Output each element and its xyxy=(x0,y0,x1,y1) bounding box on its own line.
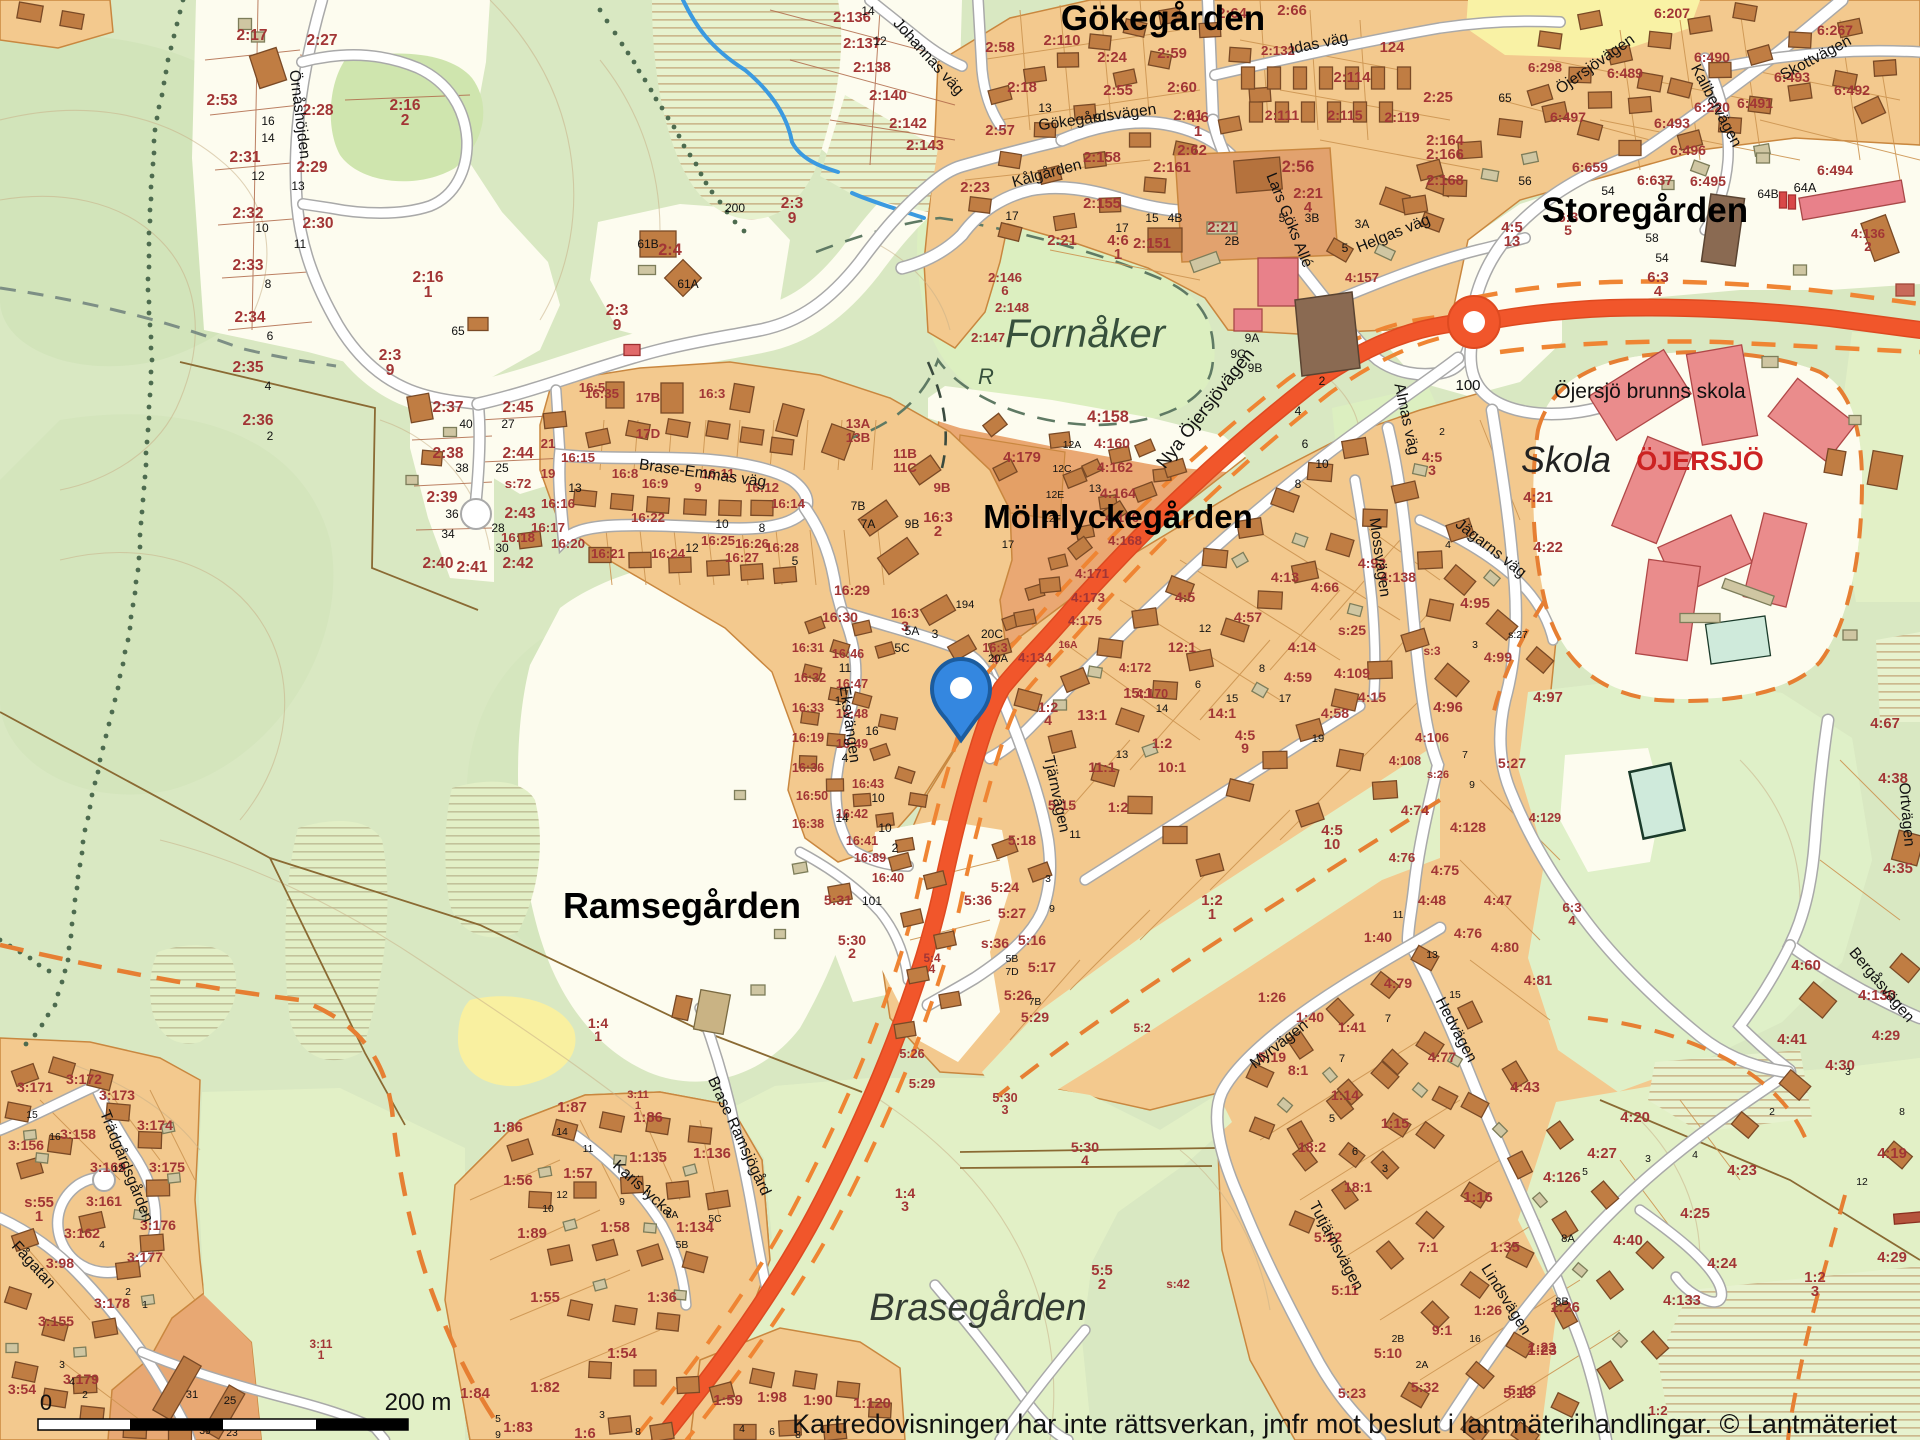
svg-text:5:27: 5:27 xyxy=(1498,755,1526,771)
svg-text:16:46: 16:46 xyxy=(832,647,864,661)
svg-text:15: 15 xyxy=(1226,693,1238,705)
svg-text:14:1: 14:1 xyxy=(1208,705,1236,721)
svg-text:2:4: 2:4 xyxy=(658,241,682,259)
svg-text:4: 4 xyxy=(1295,404,1302,418)
svg-text:10: 10 xyxy=(871,791,885,805)
svg-text:5:2: 5:2 xyxy=(1133,1021,1150,1035)
svg-text:4: 4 xyxy=(1654,284,1663,300)
svg-text:Öjersjö brunns skola: Öjersjö brunns skola xyxy=(1554,380,1746,403)
svg-text:2:140: 2:140 xyxy=(869,88,907,104)
svg-text:5:29: 5:29 xyxy=(1021,1009,1049,1025)
svg-text:194: 194 xyxy=(956,599,975,611)
svg-text:5: 5 xyxy=(495,1414,501,1425)
svg-text:4:134: 4:134 xyxy=(1018,650,1053,665)
svg-text:2:25: 2:25 xyxy=(1423,90,1453,106)
svg-text:2:29: 2:29 xyxy=(296,159,327,176)
svg-text:s:42: s:42 xyxy=(1166,1277,1190,1291)
svg-text:Gökegården: Gökegården xyxy=(1061,0,1265,38)
svg-text:20C: 20C xyxy=(981,627,1003,641)
svg-text:11C: 11C xyxy=(893,460,917,475)
svg-text:s:36: s:36 xyxy=(981,935,1009,951)
svg-text:2:56: 2:56 xyxy=(1282,158,1315,176)
svg-text:8B: 8B xyxy=(1555,1296,1569,1308)
svg-text:2:53: 2:53 xyxy=(206,92,237,109)
svg-text:4:168: 4:168 xyxy=(1108,533,1142,548)
svg-text:5:24: 5:24 xyxy=(991,879,1019,895)
svg-text:4:76: 4:76 xyxy=(1389,850,1416,865)
svg-text:s:72: s:72 xyxy=(505,476,532,491)
svg-text:2:17: 2:17 xyxy=(236,27,267,44)
svg-text:12C: 12C xyxy=(1052,464,1072,475)
svg-text:8A: 8A xyxy=(1561,1233,1575,1245)
svg-text:2:57: 2:57 xyxy=(985,123,1015,139)
svg-text:6:207: 6:207 xyxy=(1654,5,1690,21)
svg-text:3: 3 xyxy=(932,627,939,641)
svg-text:15: 15 xyxy=(1145,211,1159,225)
svg-text:7B: 7B xyxy=(1029,997,1042,1008)
svg-text:10: 10 xyxy=(1315,457,1329,471)
svg-text:7:1: 7:1 xyxy=(1418,1239,1439,1255)
svg-text:1:55: 1:55 xyxy=(530,1290,560,1306)
svg-text:4: 4 xyxy=(1568,913,1576,928)
svg-text:5C: 5C xyxy=(708,1214,722,1225)
svg-text:17: 17 xyxy=(1279,693,1291,705)
svg-text:6:298: 6:298 xyxy=(1528,60,1562,75)
svg-text:5: 5 xyxy=(792,554,799,568)
svg-text:2:37: 2:37 xyxy=(432,399,463,416)
svg-text:5:31: 5:31 xyxy=(824,892,852,908)
svg-text:3:155: 3:155 xyxy=(38,1313,74,1329)
svg-text:38: 38 xyxy=(455,461,469,475)
svg-text:3:172: 3:172 xyxy=(66,1071,102,1087)
svg-text:2: 2 xyxy=(1319,374,1326,388)
svg-text:5: 5 xyxy=(1329,1113,1335,1125)
svg-text:5:10: 5:10 xyxy=(1374,1345,1402,1361)
svg-text:4:58: 4:58 xyxy=(1321,705,1349,721)
svg-text:s:26: s:26 xyxy=(1427,769,1449,781)
svg-text:2: 2 xyxy=(401,112,410,129)
svg-text:64A: 64A xyxy=(1794,180,1817,195)
svg-text:6:491: 6:491 xyxy=(1737,95,1773,111)
svg-text:1:6: 1:6 xyxy=(574,1426,595,1440)
svg-text:2: 2 xyxy=(848,945,856,961)
svg-text:4:126: 4:126 xyxy=(1543,1170,1581,1186)
svg-text:2:40: 2:40 xyxy=(422,555,453,572)
svg-text:4: 4 xyxy=(99,1240,105,1251)
svg-text:2:23: 2:23 xyxy=(960,180,990,196)
svg-text:2:147: 2:147 xyxy=(971,330,1005,345)
svg-text:4:15: 4:15 xyxy=(1358,689,1386,705)
svg-text:4:19: 4:19 xyxy=(1877,1146,1907,1162)
svg-text:4:157: 4:157 xyxy=(1345,270,1379,285)
svg-text:25: 25 xyxy=(495,461,509,475)
svg-text:16:50: 16:50 xyxy=(796,789,828,803)
svg-text:16:40: 16:40 xyxy=(872,871,904,885)
svg-text:11B: 11B xyxy=(893,446,917,461)
svg-text:4:21: 4:21 xyxy=(1523,490,1553,506)
svg-text:16:89: 16:89 xyxy=(854,851,886,865)
svg-text:9B: 9B xyxy=(934,480,951,495)
svg-text:10: 10 xyxy=(878,821,892,835)
svg-text:4:40: 4:40 xyxy=(1613,1233,1643,1249)
svg-text:11: 11 xyxy=(839,661,852,675)
svg-text:5:27: 5:27 xyxy=(998,905,1026,921)
svg-text:2: 2 xyxy=(125,1287,131,1298)
svg-text:12A: 12A xyxy=(1063,440,1082,451)
svg-text:16:3: 16:3 xyxy=(699,386,726,401)
svg-text:1:58: 1:58 xyxy=(600,1220,630,1236)
svg-text:6:494: 6:494 xyxy=(1817,162,1853,178)
svg-text:9: 9 xyxy=(1469,780,1475,791)
svg-text:16:21: 16:21 xyxy=(591,546,626,561)
svg-text:6:496: 6:496 xyxy=(1670,142,1706,158)
svg-text:5:23: 5:23 xyxy=(1338,1385,1366,1401)
svg-text:2:161: 2:161 xyxy=(1153,160,1191,176)
svg-text:16:25: 16:25 xyxy=(701,533,736,548)
svg-text:9: 9 xyxy=(1049,904,1055,915)
svg-text:7: 7 xyxy=(1339,1053,1345,1065)
svg-text:2:33: 2:33 xyxy=(232,257,263,274)
svg-text:3: 3 xyxy=(1845,1067,1851,1078)
svg-text:4:172: 4:172 xyxy=(1119,661,1151,675)
svg-text:4:158: 4:158 xyxy=(1087,408,1129,426)
svg-text:3: 3 xyxy=(901,1198,909,1214)
svg-text:36: 36 xyxy=(445,507,459,521)
svg-text:2A: 2A xyxy=(1416,1360,1429,1371)
svg-text:3: 3 xyxy=(1001,1103,1008,1117)
svg-text:1:84: 1:84 xyxy=(460,1386,490,1402)
svg-text:3: 3 xyxy=(1428,462,1436,478)
svg-text:1:2: 1:2 xyxy=(1108,799,1129,815)
svg-text:19: 19 xyxy=(1312,733,1324,745)
svg-text:9B: 9B xyxy=(905,517,920,531)
svg-text:5:13: 5:13 xyxy=(1503,1386,1533,1402)
svg-text:4:97: 4:97 xyxy=(1533,690,1563,706)
svg-text:40: 40 xyxy=(459,417,473,431)
svg-text:31: 31 xyxy=(186,1389,198,1401)
svg-text:12: 12 xyxy=(556,1190,568,1201)
svg-text:s:25: s:25 xyxy=(1338,622,1366,638)
svg-text:2:31: 2:31 xyxy=(229,149,260,166)
svg-text:4: 4 xyxy=(1044,712,1052,728)
svg-text:2:45: 2:45 xyxy=(502,399,533,416)
svg-text:61A: 61A xyxy=(677,277,698,291)
svg-text:61B: 61B xyxy=(637,237,658,251)
svg-text:9: 9 xyxy=(788,210,797,227)
svg-text:2:41: 2:41 xyxy=(456,559,487,576)
svg-text:1:15: 1:15 xyxy=(1381,1115,1409,1131)
svg-text:2:155: 2:155 xyxy=(1083,196,1121,212)
svg-text:16:22: 16:22 xyxy=(631,510,665,525)
svg-text:65: 65 xyxy=(1498,91,1512,105)
svg-text:7D: 7D xyxy=(1005,967,1018,978)
svg-text:2:27: 2:27 xyxy=(306,32,337,49)
svg-text:5:16: 5:16 xyxy=(1018,932,1046,948)
svg-text:15: 15 xyxy=(26,1110,38,1121)
svg-text:2:24: 2:24 xyxy=(1097,50,1127,66)
svg-text:1:40: 1:40 xyxy=(1364,929,1392,945)
svg-text:2:115: 2:115 xyxy=(1327,107,1362,123)
svg-text:Storegården: Storegården xyxy=(1542,191,1748,230)
svg-text:14: 14 xyxy=(556,1127,568,1138)
svg-text:7B: 7B xyxy=(851,499,866,513)
svg-text:16:15: 16:15 xyxy=(561,450,596,465)
svg-text:16: 16 xyxy=(49,1132,61,1143)
svg-text:16:24: 16:24 xyxy=(651,546,686,561)
svg-text:4:81: 4:81 xyxy=(1524,972,1552,988)
svg-text:4:173: 4:173 xyxy=(1071,590,1105,605)
svg-text:16A: 16A xyxy=(1058,640,1078,651)
svg-text:1:56: 1:56 xyxy=(503,1173,533,1189)
svg-text:4:95: 4:95 xyxy=(1460,596,1490,612)
svg-text:5:26: 5:26 xyxy=(899,1047,924,1061)
svg-text:2:168: 2:168 xyxy=(1426,173,1464,189)
svg-text:13:1: 13:1 xyxy=(1077,708,1107,724)
svg-text:17: 17 xyxy=(1005,209,1019,223)
svg-text:1:135: 1:135 xyxy=(629,1150,667,1166)
svg-text:4:67: 4:67 xyxy=(1870,716,1900,732)
svg-text:16:35: 16:35 xyxy=(585,386,620,401)
svg-text:16:31: 16:31 xyxy=(792,641,824,655)
svg-text:5:36: 5:36 xyxy=(964,892,992,908)
svg-text:3:171: 3:171 xyxy=(17,1079,53,1095)
svg-text:4:22: 4:22 xyxy=(1533,540,1563,556)
svg-text:5C: 5C xyxy=(894,641,910,655)
svg-text:4: 4 xyxy=(1445,540,1451,551)
svg-text:10: 10 xyxy=(1324,837,1340,853)
svg-text:6: 6 xyxy=(1001,283,1008,298)
svg-text:9: 9 xyxy=(619,1197,625,1208)
svg-text:1:90: 1:90 xyxy=(803,1393,833,1409)
svg-text:16:41: 16:41 xyxy=(846,834,878,848)
svg-text:16:27: 16:27 xyxy=(725,550,759,565)
svg-text:4:133: 4:133 xyxy=(1663,1293,1701,1309)
svg-text:16:43: 16:43 xyxy=(852,777,884,791)
svg-text:12: 12 xyxy=(873,34,887,48)
svg-text:4: 4 xyxy=(69,1377,75,1388)
svg-text:2:62: 2:62 xyxy=(1177,143,1207,159)
svg-text:2: 2 xyxy=(1098,1277,1106,1293)
svg-text:16:9: 16:9 xyxy=(642,476,669,491)
svg-text:6: 6 xyxy=(1352,1146,1358,1158)
svg-text:8: 8 xyxy=(635,1427,641,1438)
svg-text:4:24: 4:24 xyxy=(1707,1256,1737,1272)
svg-text:2:39: 2:39 xyxy=(426,489,457,506)
svg-text:3: 3 xyxy=(599,1410,605,1421)
svg-text:1:136: 1:136 xyxy=(693,1146,731,1162)
svg-text:2:151: 2:151 xyxy=(1133,236,1171,252)
svg-text:2:111: 2:111 xyxy=(1265,107,1300,123)
svg-text:4:41: 4:41 xyxy=(1777,1032,1807,1048)
svg-text:16:33: 16:33 xyxy=(792,701,824,715)
svg-text:13B: 13B xyxy=(846,430,870,445)
svg-text:1:98: 1:98 xyxy=(757,1390,787,1406)
svg-text:9: 9 xyxy=(613,317,622,334)
svg-text:4:29: 4:29 xyxy=(1877,1250,1907,1266)
svg-text:1: 1 xyxy=(35,1209,43,1225)
svg-text:1: 1 xyxy=(594,1028,602,1044)
svg-text:4:162: 4:162 xyxy=(1097,459,1133,475)
svg-text:Ramsegården: Ramsegården xyxy=(563,885,801,926)
svg-text:2:119: 2:119 xyxy=(1384,109,1419,125)
svg-text:3A: 3A xyxy=(1355,217,1370,231)
svg-text:13: 13 xyxy=(1038,101,1052,115)
svg-text:2:21: 2:21 xyxy=(1047,233,1077,249)
svg-text:1:57: 1:57 xyxy=(563,1166,593,1182)
svg-text:200 m: 200 m xyxy=(385,1389,452,1416)
svg-text:2: 2 xyxy=(934,524,942,540)
svg-text:16: 16 xyxy=(1469,1334,1481,1345)
svg-text:16:14: 16:14 xyxy=(771,496,806,511)
svg-text:1:82: 1:82 xyxy=(530,1380,560,1396)
svg-text:5:29: 5:29 xyxy=(909,1076,936,1091)
svg-text:13A: 13A xyxy=(846,416,871,431)
svg-text:10:1: 10:1 xyxy=(1158,759,1186,775)
svg-text:1:26: 1:26 xyxy=(1258,989,1286,1005)
svg-text:27: 27 xyxy=(501,417,515,431)
svg-text:Mölnlyckegården: Mölnlyckegården xyxy=(983,498,1253,535)
svg-text:3:174: 3:174 xyxy=(137,1117,173,1133)
svg-text:16:28: 16:28 xyxy=(765,540,799,555)
svg-text:s:27: s:27 xyxy=(1508,630,1528,641)
svg-text:13: 13 xyxy=(1426,950,1438,961)
svg-text:4:48: 4:48 xyxy=(1418,892,1446,908)
svg-text:17: 17 xyxy=(1002,539,1014,551)
svg-text:16:38: 16:38 xyxy=(792,817,824,831)
svg-text:18:1: 18:1 xyxy=(1344,1179,1372,1195)
svg-text:100: 100 xyxy=(1455,377,1480,394)
svg-text:124: 124 xyxy=(1380,40,1405,56)
svg-text:2:42: 2:42 xyxy=(502,555,533,572)
svg-text:2:158: 2:158 xyxy=(1083,150,1121,166)
svg-text:4: 4 xyxy=(265,379,272,393)
svg-text:2: 2 xyxy=(892,841,899,855)
svg-text:1: 1 xyxy=(1194,124,1202,140)
svg-text:58: 58 xyxy=(1645,231,1659,245)
svg-text:4:60: 4:60 xyxy=(1791,958,1821,974)
svg-text:2:114: 2:114 xyxy=(1333,70,1371,86)
svg-text:2: 2 xyxy=(1439,427,1445,438)
svg-text:4:74: 4:74 xyxy=(1401,802,1429,818)
svg-text:4:75: 4:75 xyxy=(1431,862,1459,878)
svg-text:9A: 9A xyxy=(1245,331,1260,345)
svg-text:4:25: 4:25 xyxy=(1680,1206,1710,1222)
svg-text:5: 5 xyxy=(1582,1167,1588,1178)
svg-text:2:55: 2:55 xyxy=(1103,83,1133,99)
svg-text:2:18: 2:18 xyxy=(1007,80,1037,96)
svg-text:4:128: 4:128 xyxy=(1450,819,1486,835)
svg-text:5B: 5B xyxy=(1006,954,1019,965)
svg-text:16:20: 16:20 xyxy=(551,536,585,551)
svg-text:56: 56 xyxy=(1518,174,1532,188)
svg-text:9: 9 xyxy=(386,362,395,379)
svg-text:1:23: 1:23 xyxy=(1527,1343,1557,1359)
svg-text:4:35: 4:35 xyxy=(1883,861,1913,877)
svg-text:10: 10 xyxy=(255,221,269,235)
svg-text:9:1: 9:1 xyxy=(1432,1322,1453,1338)
svg-text:6: 6 xyxy=(1302,437,1309,451)
svg-text:4:96: 4:96 xyxy=(1433,700,1463,716)
svg-text:6:489: 6:489 xyxy=(1607,65,1643,81)
svg-text:4:77: 4:77 xyxy=(1428,1049,1456,1065)
svg-text:3:54: 3:54 xyxy=(8,1381,36,1397)
svg-text:16:19: 16:19 xyxy=(792,731,824,745)
svg-text:0: 0 xyxy=(40,1390,52,1415)
svg-text:4:20: 4:20 xyxy=(1620,1110,1650,1126)
svg-text:1:16: 1:16 xyxy=(1463,1190,1493,1206)
svg-text:14: 14 xyxy=(1156,703,1168,715)
svg-text:2:66: 2:66 xyxy=(1277,3,1307,19)
svg-text:4:23: 4:23 xyxy=(1727,1163,1757,1179)
svg-text:2:143: 2:143 xyxy=(906,138,944,154)
svg-text:4:129: 4:129 xyxy=(1529,811,1561,825)
svg-text:2:34: 2:34 xyxy=(234,309,265,326)
svg-text:16:36: 16:36 xyxy=(792,761,824,775)
svg-text:16:17: 16:17 xyxy=(531,520,565,535)
svg-text:3:158: 3:158 xyxy=(60,1126,96,1142)
svg-text:34: 34 xyxy=(441,527,455,541)
svg-text:3: 3 xyxy=(1811,1284,1819,1300)
svg-text:6:493: 6:493 xyxy=(1654,115,1690,131)
svg-text:8: 8 xyxy=(1295,477,1302,491)
svg-text:3:98: 3:98 xyxy=(46,1255,74,1271)
svg-text:2B: 2B xyxy=(1392,1334,1405,1345)
svg-text:4: 4 xyxy=(929,962,936,976)
svg-text:101: 101 xyxy=(862,894,882,908)
svg-text:5:17: 5:17 xyxy=(1028,959,1056,975)
svg-text:11:1: 11:1 xyxy=(1088,759,1116,775)
svg-text:4:99: 4:99 xyxy=(1484,649,1512,665)
svg-text:20A: 20A xyxy=(988,653,1008,665)
svg-text:1:86: 1:86 xyxy=(493,1120,523,1136)
svg-text:6:497: 6:497 xyxy=(1550,109,1586,125)
svg-text:16:26: 16:26 xyxy=(735,536,769,551)
svg-text:13: 13 xyxy=(1089,483,1101,495)
svg-text:2:59: 2:59 xyxy=(1157,46,1187,62)
svg-text:3: 3 xyxy=(1472,640,1478,651)
svg-text:17B: 17B xyxy=(636,390,660,405)
svg-text:10: 10 xyxy=(715,517,729,531)
svg-text:2:38: 2:38 xyxy=(432,445,463,462)
svg-text:13: 13 xyxy=(568,481,582,495)
svg-text:13: 13 xyxy=(1116,749,1128,761)
svg-text:1:35: 1:35 xyxy=(1490,1240,1520,1256)
svg-text:4:47: 4:47 xyxy=(1484,892,1512,908)
svg-text:Kartredovisningen har inte rät: Kartredovisningen har inte rättsverkan, … xyxy=(792,1409,1897,1439)
svg-text:12: 12 xyxy=(1856,1177,1868,1188)
svg-text:2: 2 xyxy=(82,1390,88,1401)
svg-text:15: 15 xyxy=(1449,990,1461,1001)
svg-text:4:66: 4:66 xyxy=(1311,579,1339,595)
svg-text:4:79: 4:79 xyxy=(1384,975,1412,991)
svg-text:54: 54 xyxy=(1655,251,1669,265)
svg-text:4:175: 4:175 xyxy=(1068,613,1103,628)
svg-text:1:36: 1:36 xyxy=(647,1290,677,1306)
svg-text:4:59: 4:59 xyxy=(1284,669,1312,685)
svg-text:12: 12 xyxy=(1199,623,1211,635)
svg-text:1:83: 1:83 xyxy=(503,1420,533,1436)
svg-text:R: R xyxy=(978,364,994,389)
svg-text:4:57: 4:57 xyxy=(1234,609,1262,625)
svg-text:18:2: 18:2 xyxy=(1298,1139,1326,1155)
svg-text:4: 4 xyxy=(1692,1150,1698,1161)
svg-text:2:166: 2:166 xyxy=(1426,147,1464,163)
svg-text:5A: 5A xyxy=(905,624,920,638)
svg-text:2:142: 2:142 xyxy=(889,116,927,132)
svg-text:2:32: 2:32 xyxy=(232,205,263,222)
svg-text:4:80: 4:80 xyxy=(1491,939,1519,955)
svg-text:1:2: 1:2 xyxy=(1152,735,1173,751)
